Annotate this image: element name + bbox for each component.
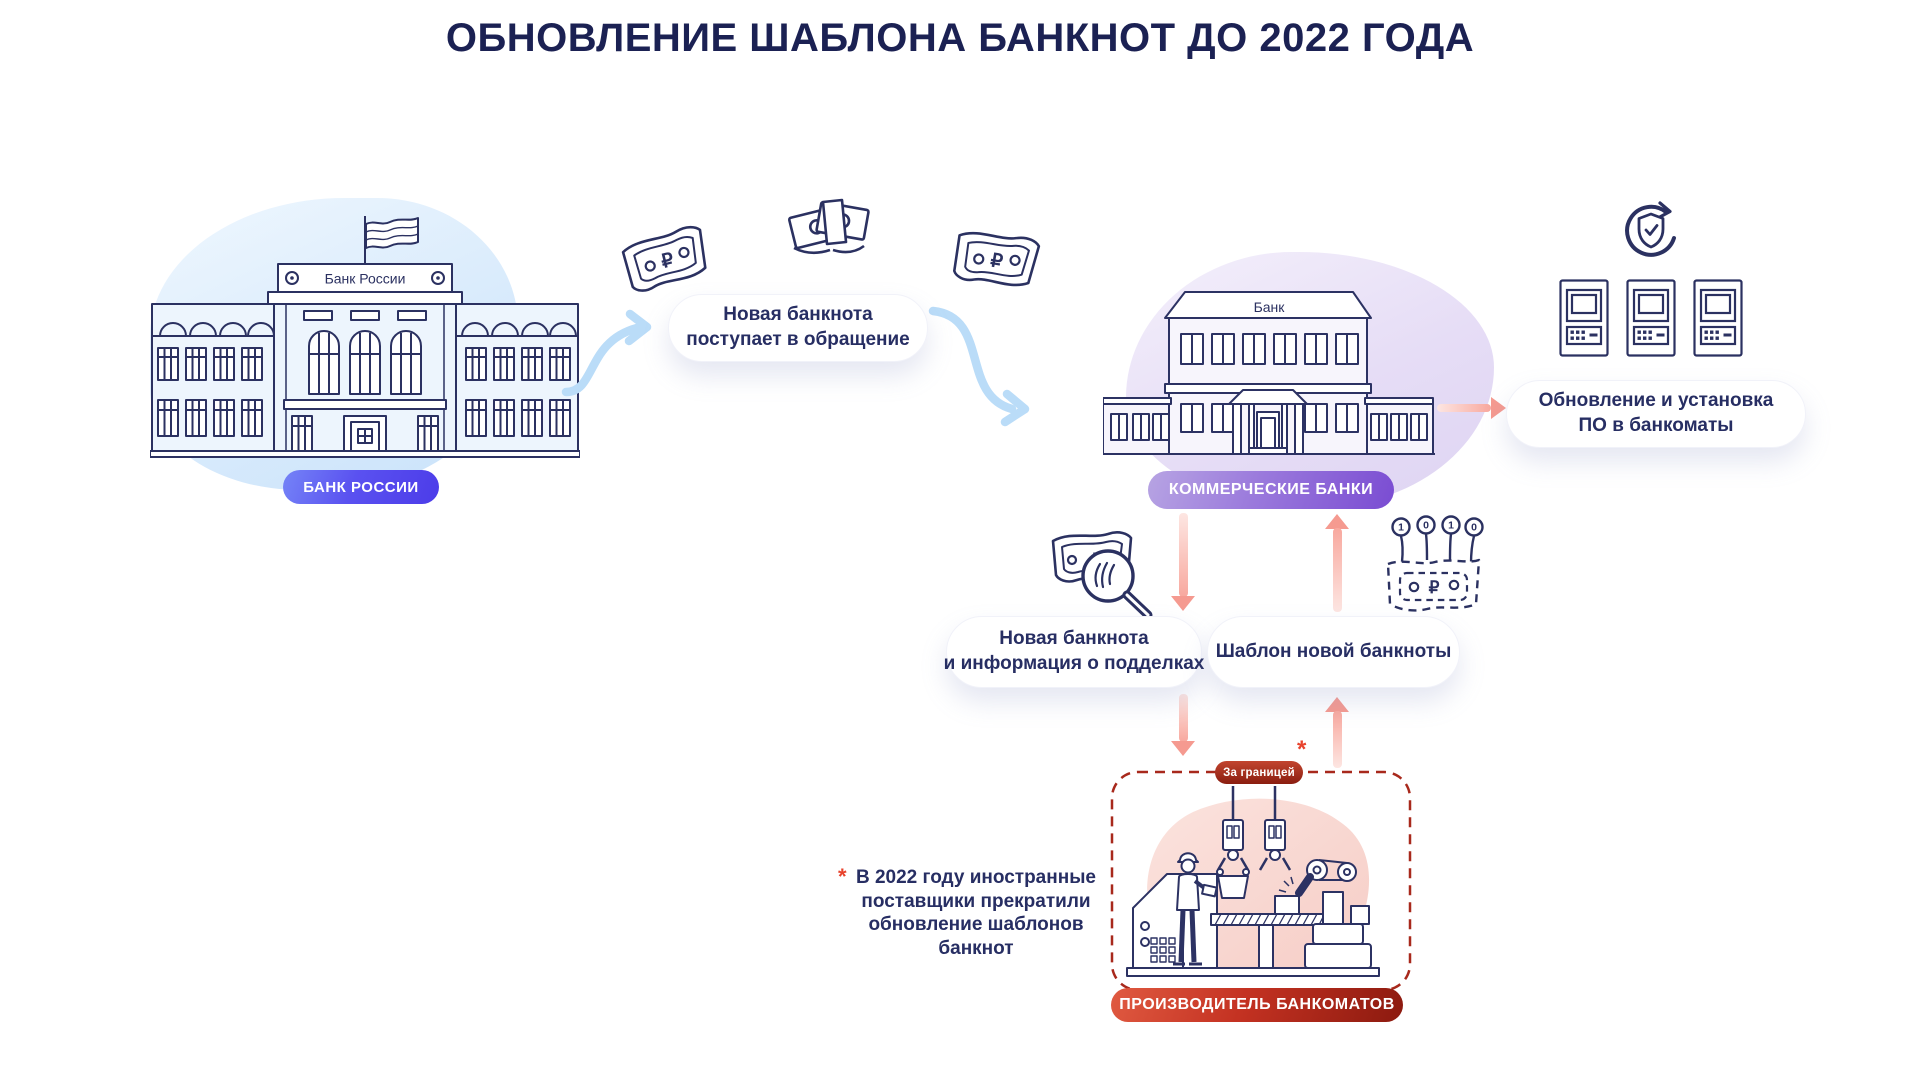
bubble-counterfeit-line1: Новая банкнота (999, 627, 1148, 652)
flow-arrowhead (1171, 596, 1195, 611)
footnote: В 2022 году иностранные поставщики прекр… (840, 866, 1112, 960)
banknote-icon: ₽ (947, 219, 1045, 299)
commercial-banks-label: КОММЕРЧЕСКИЕ БАНКИ (1148, 471, 1394, 509)
bubble-circulation-line1: Новая банкнота (723, 303, 872, 328)
flow-arrow-down-counterfeit (1179, 513, 1188, 597)
flow-arrow-up-from-manufacturer (1333, 711, 1342, 768)
flow-arrow-up-template (1333, 528, 1342, 612)
banknote-template-icon: 1 0 1 0 ₽ (1381, 514, 1487, 614)
flow-arrowhead (1491, 397, 1506, 419)
pin-digit: 0 (1423, 520, 1429, 532)
bank-of-russia-building: Банк России (150, 208, 580, 458)
atm-icon (1559, 279, 1609, 357)
bank-of-russia-label: БАНК РОССИИ (283, 470, 439, 504)
pin-digit: 1 (1398, 522, 1404, 534)
bubble-atm-software: Обновление и установка ПО в банкоматы (1506, 380, 1806, 448)
flow-arrow-to-circulation (545, 300, 675, 410)
atm-icon (1626, 279, 1676, 357)
bank-of-russia-sign: Банк России (325, 271, 406, 287)
flow-arrowhead (1325, 697, 1349, 712)
bubble-atm-software-line1: Обновление и установка (1539, 389, 1774, 414)
abroad-asterisk: * (1297, 736, 1306, 764)
flow-arrow-to-atm-software (1437, 404, 1491, 412)
factory-illustration (1123, 786, 1395, 986)
footnote-line: поставщики прекратили (840, 890, 1112, 914)
commercial-bank-sign: Банк (1254, 299, 1286, 315)
footnote-line: банкнот (840, 937, 1112, 961)
banknote-icon: ₽ (615, 216, 716, 301)
footnote-line: обновление шаблонов (840, 913, 1112, 937)
flow-arrow-down-to-manufacturer (1179, 694, 1188, 742)
ruble-sign: ₽ (1429, 578, 1440, 597)
page-title: ОБНОВЛЕНИЕ ШАБЛОНА БАНКНОТ ДО 2022 ГОДА (0, 16, 1920, 61)
footnote-line: В 2022 году иностранные (840, 866, 1112, 890)
flow-arrowhead (1171, 741, 1195, 756)
bubble-new-template-line1: Шаблон новой банкноты (1216, 640, 1452, 665)
shield-refresh-icon (1622, 200, 1680, 258)
abroad-badge: За границей (1215, 761, 1303, 784)
infographic-canvas: ОБНОВЛЕНИЕ ШАБЛОНА БАНКНОТ ДО 2022 ГОДА (0, 0, 1920, 1080)
bubble-counterfeit-line2: и информация о подделках (944, 652, 1205, 677)
manufacturer-label: ПРОИЗВОДИТЕЛЬ БАНКОМАТОВ (1111, 988, 1403, 1022)
atm-icon (1693, 279, 1743, 357)
flow-arrowhead (1325, 514, 1349, 529)
pin-digit: 1 (1448, 520, 1454, 532)
bubble-atm-software-line2: ПО в банкоматы (1579, 414, 1734, 439)
bubble-circulation-line2: поступает в обращение (686, 328, 909, 353)
bubble-circulation: Новая банкнота поступает в обращение (668, 294, 928, 362)
money-stack-icon (786, 190, 871, 270)
bubble-new-template: Шаблон новой банкноты (1207, 616, 1460, 688)
bubble-counterfeit-info: Новая банкнота и информация о подделках (946, 616, 1202, 688)
commercial-bank-building: Банк (1103, 286, 1435, 456)
flow-arrow-to-commercial-banks (915, 303, 1045, 428)
magnifier-banknote-icon: ₽ (1048, 524, 1158, 620)
pin-digit: 0 (1471, 522, 1477, 534)
